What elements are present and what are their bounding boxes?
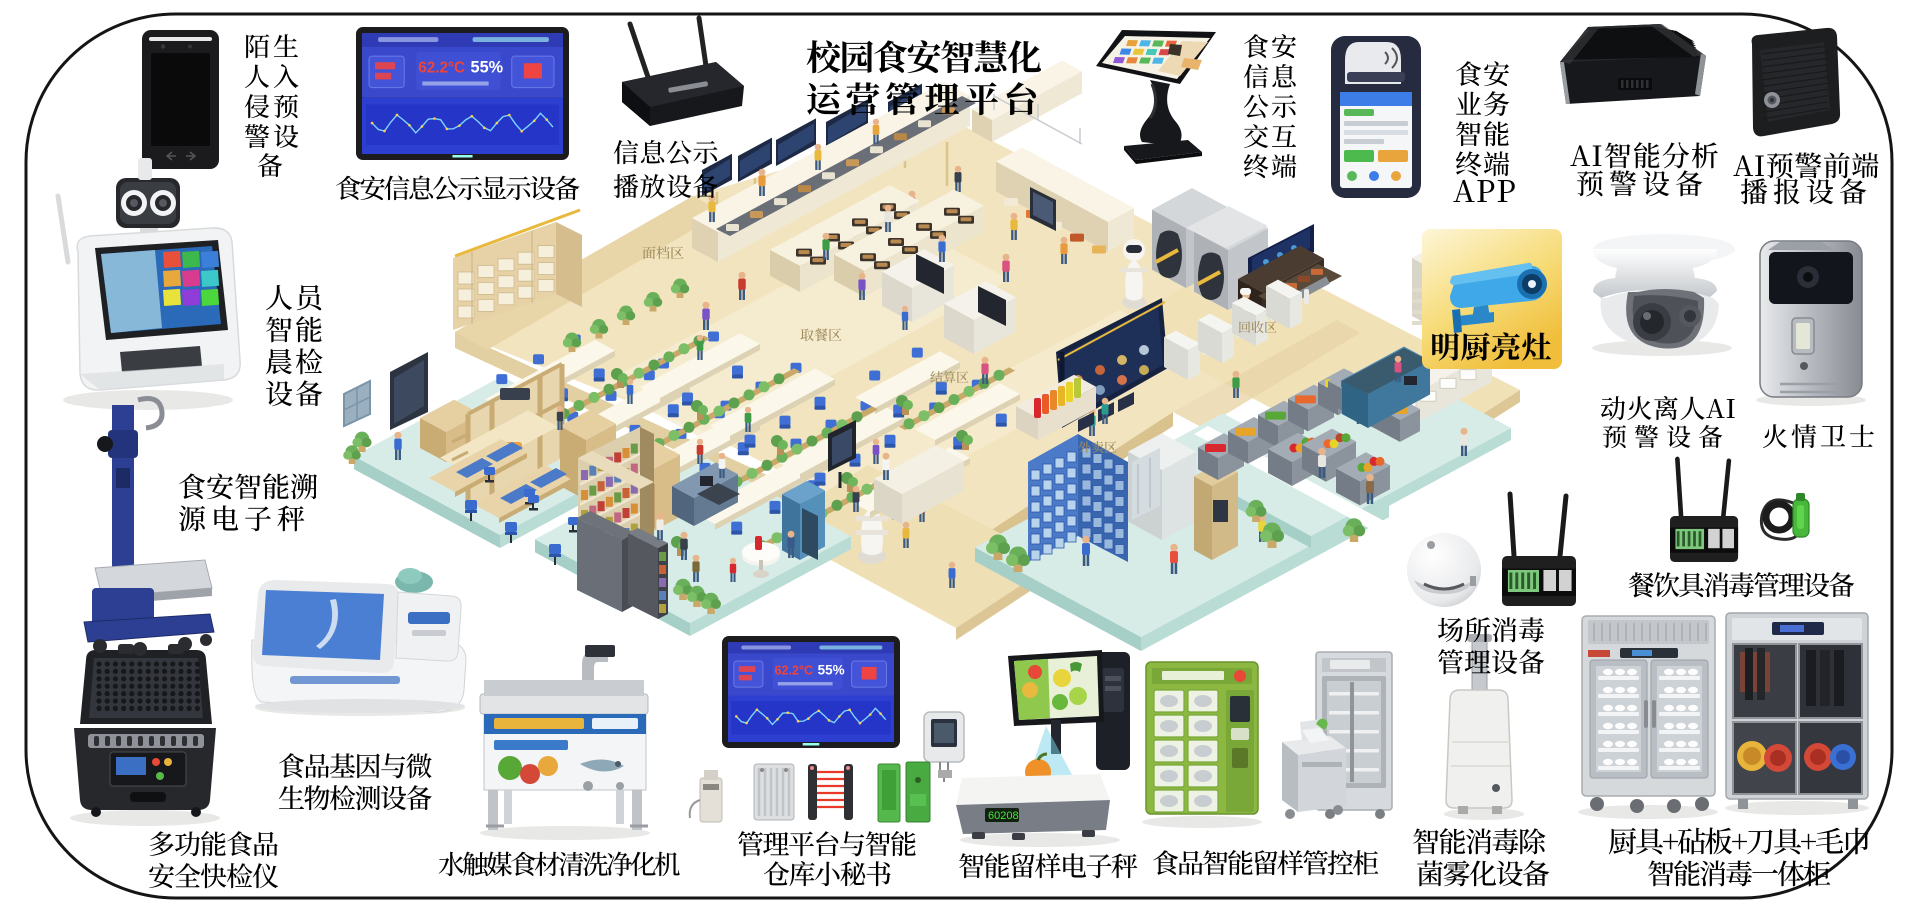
- svg-text:62.2°C: 62.2°C: [418, 59, 465, 76]
- svg-text:62.2°C: 62.2°C: [774, 664, 813, 678]
- svg-text:55%: 55%: [471, 58, 504, 76]
- svg-text:55%: 55%: [818, 663, 845, 678]
- svg-text:60208: 60208: [988, 810, 1019, 822]
